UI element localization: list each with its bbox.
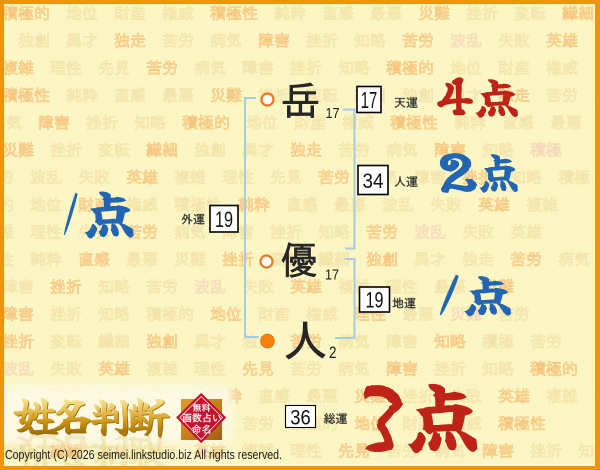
- svg-text:19: 19: [215, 207, 233, 232]
- svg-text:Copyright (C) 2026 seimei.link: Copyright (C) 2026 seimei.linkstudio.biz…: [5, 448, 282, 462]
- svg-text:34: 34: [363, 169, 384, 193]
- svg-text:17: 17: [361, 87, 378, 113]
- svg-text:2: 2: [329, 344, 337, 362]
- svg-text:17: 17: [326, 105, 340, 122]
- svg-text:17: 17: [325, 267, 339, 284]
- svg-text:36: 36: [290, 405, 311, 429]
- svg-text:19: 19: [366, 288, 384, 313]
